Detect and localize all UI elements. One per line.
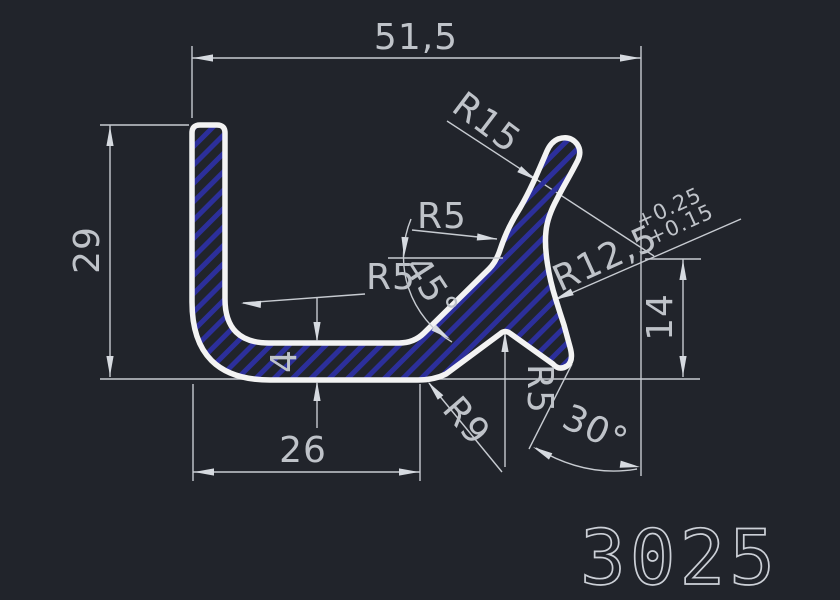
- part-number: 3025: [580, 513, 779, 600]
- label-r5-notch: R5: [519, 364, 560, 414]
- dim-height-right: 14: [640, 293, 681, 341]
- label-r9: R9: [434, 389, 498, 454]
- label-r5-fork: R5: [417, 196, 467, 237]
- label-angle-30: 30°: [556, 397, 634, 462]
- dim-width-base: 26: [279, 430, 327, 471]
- technical-drawing: 51,5 29 26 14 4 R5 R5 R15 R12,5 +0.25 +0…: [0, 0, 840, 600]
- dim-thickness: 4: [264, 349, 305, 373]
- profile-cross-section: [192, 125, 580, 380]
- dimension-texts: 51,5 29 26 14 4 R5 R5 R15 R12,5 +0.25 +0…: [67, 17, 779, 600]
- label-r15: R15: [445, 84, 529, 161]
- dim-width-total: 51,5: [374, 17, 458, 58]
- dim-height-left: 29: [67, 226, 108, 274]
- cad-canvas: 51,5 29 26 14 4 R5 R5 R15 R12,5 +0.25 +0…: [0, 0, 840, 600]
